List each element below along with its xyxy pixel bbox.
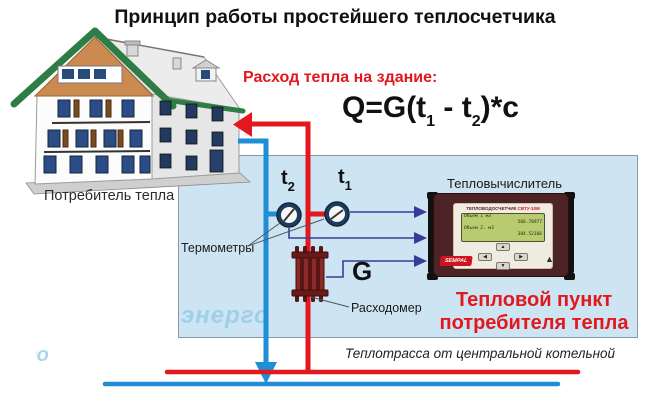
arrow-right-icon bbox=[414, 232, 427, 244]
heat-point-title: Тепловой пункт потребителя тепла bbox=[428, 289, 640, 335]
attic-pane bbox=[62, 69, 74, 79]
down-arrow-button: ▼ bbox=[496, 262, 510, 270]
pipeline-label: Теплотрасса от центральной котельной bbox=[340, 346, 620, 361]
heat-calculator-device: ТЕПЛОВОДОСЧЕТЧИК СВТУ-10М Объем 1 м3 566… bbox=[428, 190, 578, 282]
house-illustration bbox=[14, 31, 250, 194]
sempal-brand-badge: SEMPAL bbox=[439, 256, 472, 266]
t2-label: t2 bbox=[281, 167, 295, 192]
arrow-right-icon bbox=[414, 206, 427, 218]
lcd-line: 384.52166 bbox=[462, 232, 544, 238]
arrow-right-icon bbox=[414, 255, 427, 267]
side-windows bbox=[160, 101, 223, 172]
heat-consumer-label: Потребитель тепла bbox=[44, 188, 174, 204]
cert-triangle-icon: ▲ bbox=[545, 254, 554, 264]
up-arrow-button: ▲ bbox=[496, 243, 510, 251]
heating-pipe-2 bbox=[44, 151, 150, 152]
right-arrow-button: ▶ bbox=[514, 253, 528, 261]
radiator-row-1 bbox=[58, 100, 134, 117]
chimney-small bbox=[173, 58, 181, 69]
thermometer-gauge-t2 bbox=[266, 203, 301, 227]
attic-pane bbox=[78, 69, 90, 79]
heat-point-line1: Тепловой пункт bbox=[428, 289, 640, 312]
heat-formula: Q=G(t1 - t2)*c bbox=[342, 91, 519, 129]
left-arrow-button: ◀ bbox=[478, 253, 492, 261]
device-body: ТЕПЛОВОДОСЧЕТЧИК СВТУ-10М Объем 1 м3 566… bbox=[433, 193, 569, 277]
chimney-cap bbox=[125, 41, 140, 45]
heat-calculator-label: Тепловычислитель bbox=[447, 176, 562, 191]
dormer-window bbox=[201, 70, 210, 79]
signal-arrowheads bbox=[414, 206, 427, 267]
thermometers-label: Термометры bbox=[181, 241, 254, 255]
diagram-title: Принцип работы простейшего теплосчетчика bbox=[0, 6, 670, 29]
heating-pipe-1 bbox=[52, 122, 150, 123]
t1-label: t1 bbox=[338, 166, 352, 191]
flowmeter-label: Расходомер bbox=[351, 301, 422, 315]
attic-pane bbox=[94, 69, 106, 79]
device-model-label: ТЕПЛОВОДОСЧЕТЧИК СВТУ-10М bbox=[454, 206, 552, 211]
heat-consumption-heading: Расход тепла на здание: bbox=[243, 69, 437, 87]
diagram-canvas: энерго энерго bbox=[0, 0, 670, 402]
lcd-screen: Объем 1 м3 566.78977 Объем 2. м3 384.521… bbox=[461, 213, 545, 242]
heat-point-line2: потребителя тепла bbox=[428, 312, 640, 335]
flowmeter-device bbox=[292, 246, 328, 302]
flow-symbol-label: G bbox=[352, 256, 372, 287]
